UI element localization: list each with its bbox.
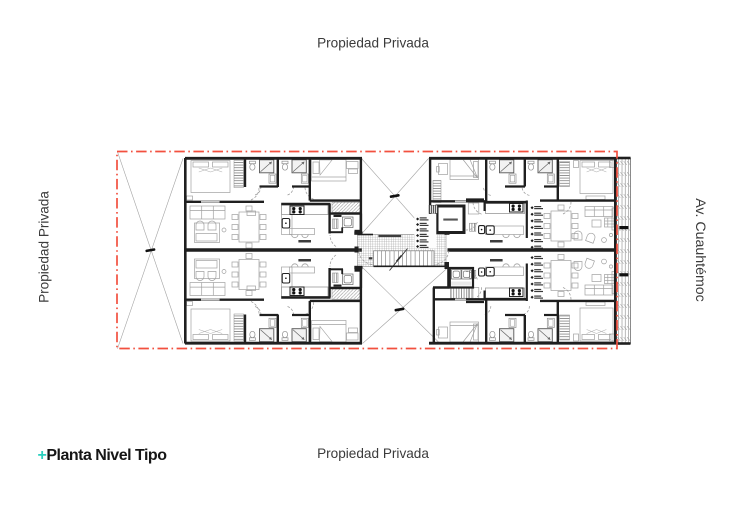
svg-text:Propiedad Privada: Propiedad Privada xyxy=(317,36,429,51)
svg-text:+Planta Nivel Tipo: +Planta Nivel Tipo xyxy=(38,447,168,464)
svg-text:Av. Cuauhtémoc: Av. Cuauhtémoc xyxy=(692,198,708,302)
svg-text:Propiedad Privada: Propiedad Privada xyxy=(37,191,52,303)
svg-text:Propiedad Privada: Propiedad Privada xyxy=(317,446,429,461)
